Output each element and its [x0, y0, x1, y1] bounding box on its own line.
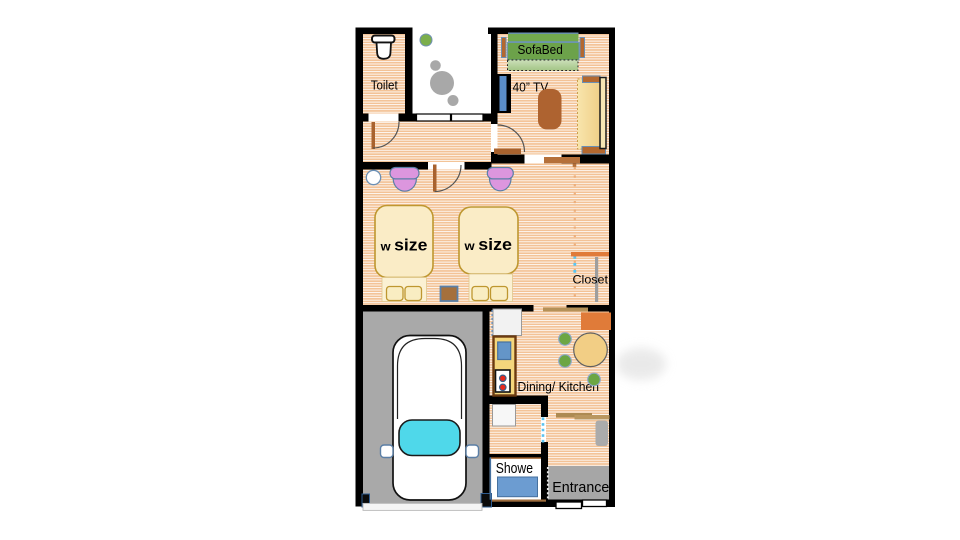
svg-text:Entrance: Entrance: [552, 479, 609, 496]
svg-text:Showe: Showe: [496, 461, 533, 477]
svg-text:SofaBed: SofaBed: [518, 43, 563, 57]
svg-text:Dining/ Kitchen: Dining/ Kitchen: [518, 380, 600, 394]
svg-text:Toilet: Toilet: [371, 78, 398, 92]
svg-text:Closet: Closet: [573, 273, 609, 287]
svg-text:w size: w size: [380, 236, 428, 254]
svg-text:w size: w size: [463, 236, 512, 254]
